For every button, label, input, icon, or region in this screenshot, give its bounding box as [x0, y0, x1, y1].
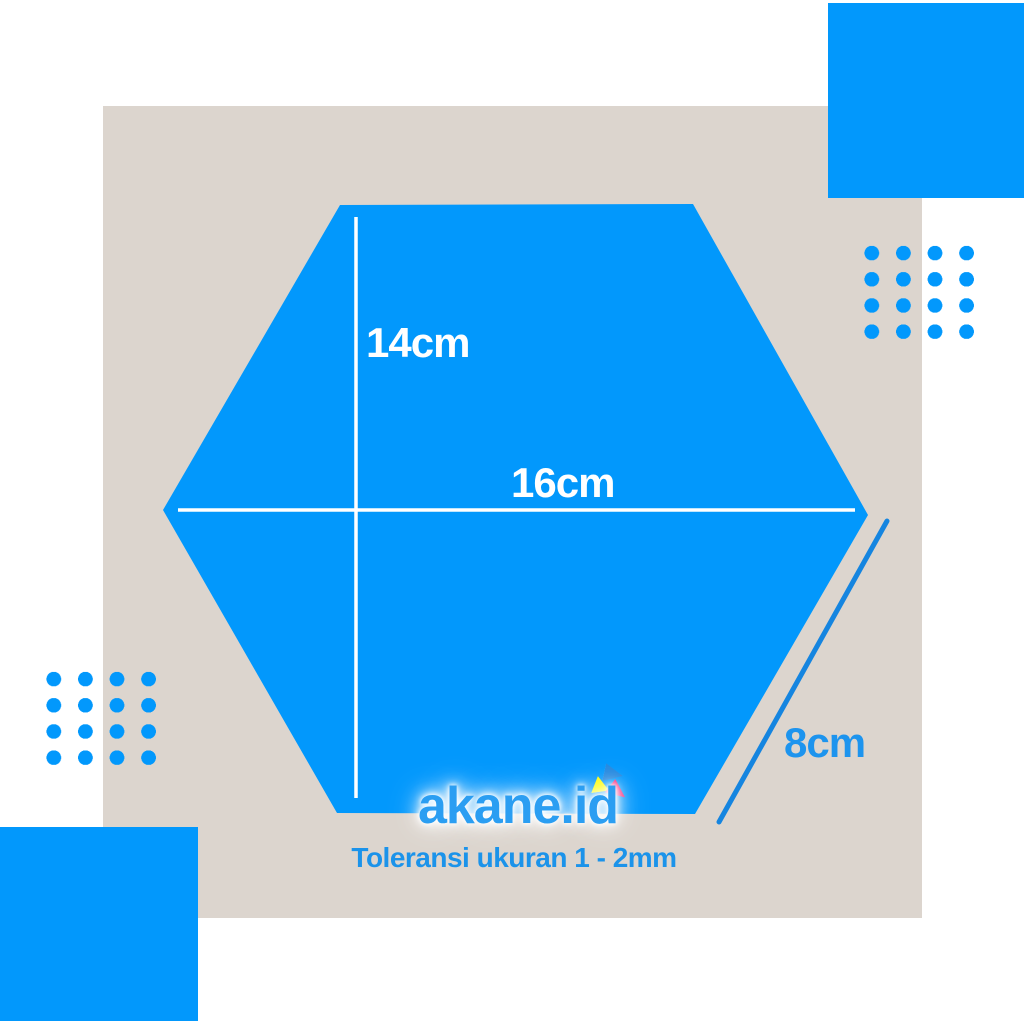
- width-label: 16cm: [511, 462, 614, 504]
- tolerance-note: Toleransi ukuran 1 - 2mm: [351, 843, 676, 874]
- watermark-text: akane.id: [418, 780, 618, 832]
- side-label: 8cm: [784, 722, 865, 764]
- height-label: 14cm: [366, 322, 469, 364]
